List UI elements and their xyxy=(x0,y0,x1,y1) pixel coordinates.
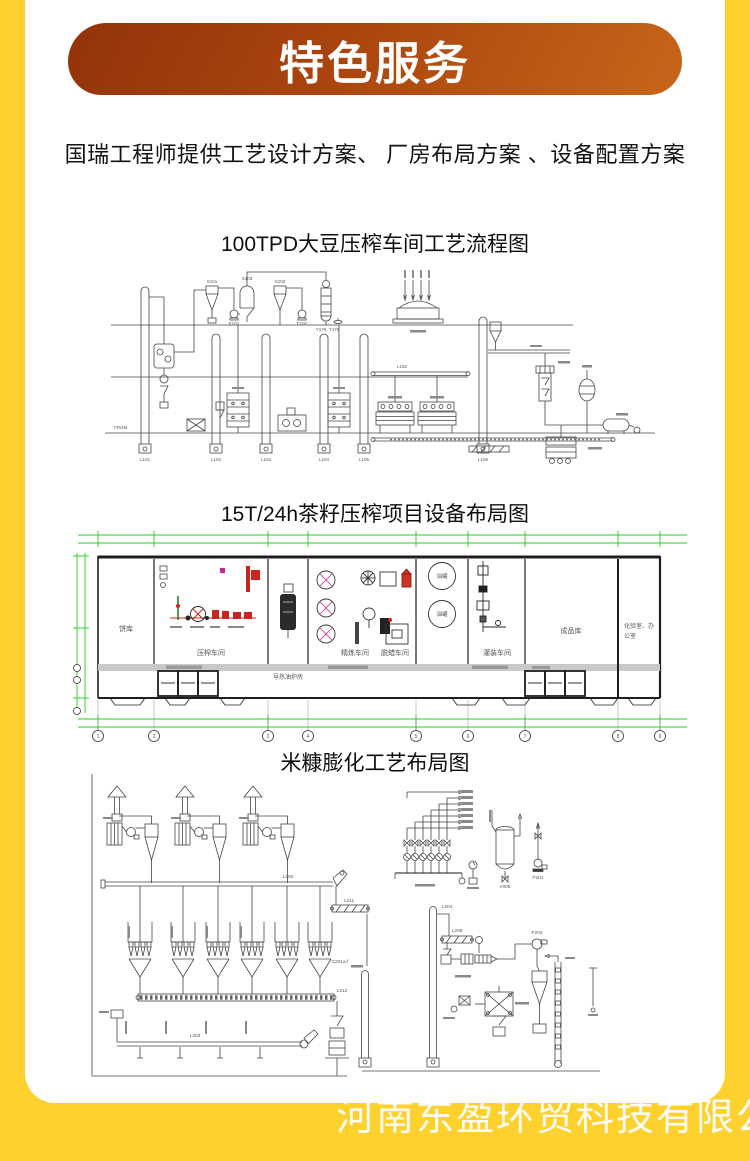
axis-number: 9 xyxy=(659,734,662,740)
dryer-icon xyxy=(451,986,513,1036)
elevator-label: L105 xyxy=(359,457,370,462)
filter-vessel-icon xyxy=(536,366,603,425)
scrubber-column-icon xyxy=(321,281,342,326)
banner-title: 特色服务 xyxy=(279,27,471,92)
equipment-label: L152 xyxy=(397,364,408,369)
equipment-label: S101 xyxy=(207,279,218,284)
elevator-label: L101 xyxy=(140,457,151,462)
axis-number: 3 xyxy=(267,734,270,740)
equipment-label: L211 xyxy=(344,898,355,904)
oil-furnace-icon xyxy=(280,584,296,638)
fan-cyclone-icon xyxy=(532,939,547,1033)
room-label: 灌装车间 xyxy=(483,648,511,657)
bottom-conveyor-icon xyxy=(111,1010,318,1058)
equipment-label: F102 xyxy=(297,321,308,326)
rice-bran-extrusion-diagram: L202 L211 L212 C201a-f L203 L204 L206 F2… xyxy=(85,766,665,1098)
banner: 特色服务 xyxy=(68,23,682,95)
room-label: 精炼车间 xyxy=(341,648,369,657)
axis-number: 4 xyxy=(307,734,310,740)
axis-number: 2 xyxy=(153,734,156,740)
elevator-icons xyxy=(359,907,449,1068)
cyclone-icon xyxy=(274,286,306,325)
room-label: 导热油炉房 xyxy=(273,673,303,681)
equipment-label: L203 xyxy=(190,1033,201,1039)
conditioner-tower-icon xyxy=(227,325,350,433)
oil-tank-label: 油罐 xyxy=(436,610,448,618)
room-label: 饼库 xyxy=(119,624,133,633)
elevator-label: L106 xyxy=(478,457,489,462)
room-label: 化验室、办 xyxy=(624,622,654,630)
conveyor-l202-icon xyxy=(101,870,347,888)
axis-number: 1 xyxy=(97,734,100,740)
equipment-label: Y176 xyxy=(316,327,327,332)
screw-conveyor-icon xyxy=(331,886,370,966)
extractor-machine-icon xyxy=(393,280,443,323)
cleaner-icon xyxy=(149,290,206,408)
equipment-label: L202 xyxy=(283,874,294,880)
equipment-label: S103 xyxy=(242,276,253,281)
pump-p201-icon xyxy=(533,823,547,872)
equipment-labels: S101 S103 S102 F101 F102 Y176 Y175 L152 … xyxy=(114,276,489,462)
equipment-label: L204 xyxy=(442,904,453,910)
equipment-label: V005 xyxy=(499,884,511,890)
press-line-equipment xyxy=(160,566,260,628)
grid-axis-markers: 1 2 3 4 5 6 7 8 9 xyxy=(74,665,666,742)
chain-conveyor-icon xyxy=(136,994,336,1001)
cyclone-icon xyxy=(206,286,234,323)
equipment-label: Y175 xyxy=(329,327,340,332)
cyclone-cluster-icons xyxy=(128,886,332,994)
room-label: 压榨车间 xyxy=(197,648,225,657)
equipment-label: L212 xyxy=(337,988,348,994)
equipment-label: P201 xyxy=(532,875,544,881)
press-feeder-icon xyxy=(325,1001,349,1076)
soybean-process-flow-diagram: S101 S103 S102 F101 F102 Y176 Y175 L152 … xyxy=(100,262,660,477)
fan-icon xyxy=(230,310,240,320)
elevator-label: L104 xyxy=(319,457,330,462)
flow-structure xyxy=(105,272,655,464)
equipment-label: F202 xyxy=(532,930,543,936)
screw-l206-icon xyxy=(441,936,474,949)
elevator-label: L103 xyxy=(261,457,272,462)
oil-tank-icon xyxy=(603,419,640,434)
cyclone-icon xyxy=(488,322,570,366)
content-card: 特色服务 国瑞工程师提供工艺设计方案、 厂房布局方案 、设备配置方案 100TP… xyxy=(25,0,725,1103)
room-label: 脱蜡车间 xyxy=(381,648,409,657)
plant-floor-layout-diagram: 1 2 3 4 5 6 7 8 9 xyxy=(70,528,695,745)
chain-elevator-icon xyxy=(545,955,597,1068)
conveyor-icon xyxy=(371,372,470,402)
hydration-vessel-icon xyxy=(579,370,595,433)
diagram2-title: 15T/24h茶籽压榨项目设备布局图 xyxy=(25,498,725,528)
tank-v005-icon xyxy=(492,810,522,882)
room-label: 成品库 xyxy=(561,626,582,635)
elevator-label: L102 xyxy=(211,457,222,462)
axis-number: 5 xyxy=(415,734,418,740)
equipment-label: L206 xyxy=(452,928,463,934)
axis-number: 6 xyxy=(467,734,470,740)
promo-page: 特色服务 国瑞工程师提供工艺设计方案、 厂房布局方案 、设备配置方案 100TP… xyxy=(0,0,750,1161)
filling-line-equipment xyxy=(477,561,506,632)
axis-number: 7 xyxy=(524,734,527,740)
equipment-label: C201a-f xyxy=(331,959,349,965)
extruder-icon xyxy=(441,937,532,965)
equipment-label: FROM xyxy=(114,425,127,430)
diagram1-title: 100TPD大豆压榨车间工艺流程图 xyxy=(25,228,725,258)
intro-text: 国瑞工程师提供工艺设计方案、 厂房布局方案 、设备配置方案 xyxy=(25,137,725,169)
refining-equipment xyxy=(317,569,411,644)
oil-tank-circles: 油罐 油罐 xyxy=(429,563,456,628)
room-label: 公室 xyxy=(624,632,636,640)
layout-structure xyxy=(92,774,600,1076)
vent-stack-group-icons xyxy=(107,786,294,883)
equipment-label: F101 xyxy=(229,321,240,326)
company-watermark: 河南东盈环贸科技有限公司 xyxy=(336,1086,750,1141)
equipment-label: S102 xyxy=(275,279,286,284)
oil-press-icon xyxy=(376,402,456,433)
oil-tank-label: 油罐 xyxy=(436,572,448,580)
cooler-machine-icon xyxy=(546,425,576,464)
axis-number: 8 xyxy=(617,734,620,740)
